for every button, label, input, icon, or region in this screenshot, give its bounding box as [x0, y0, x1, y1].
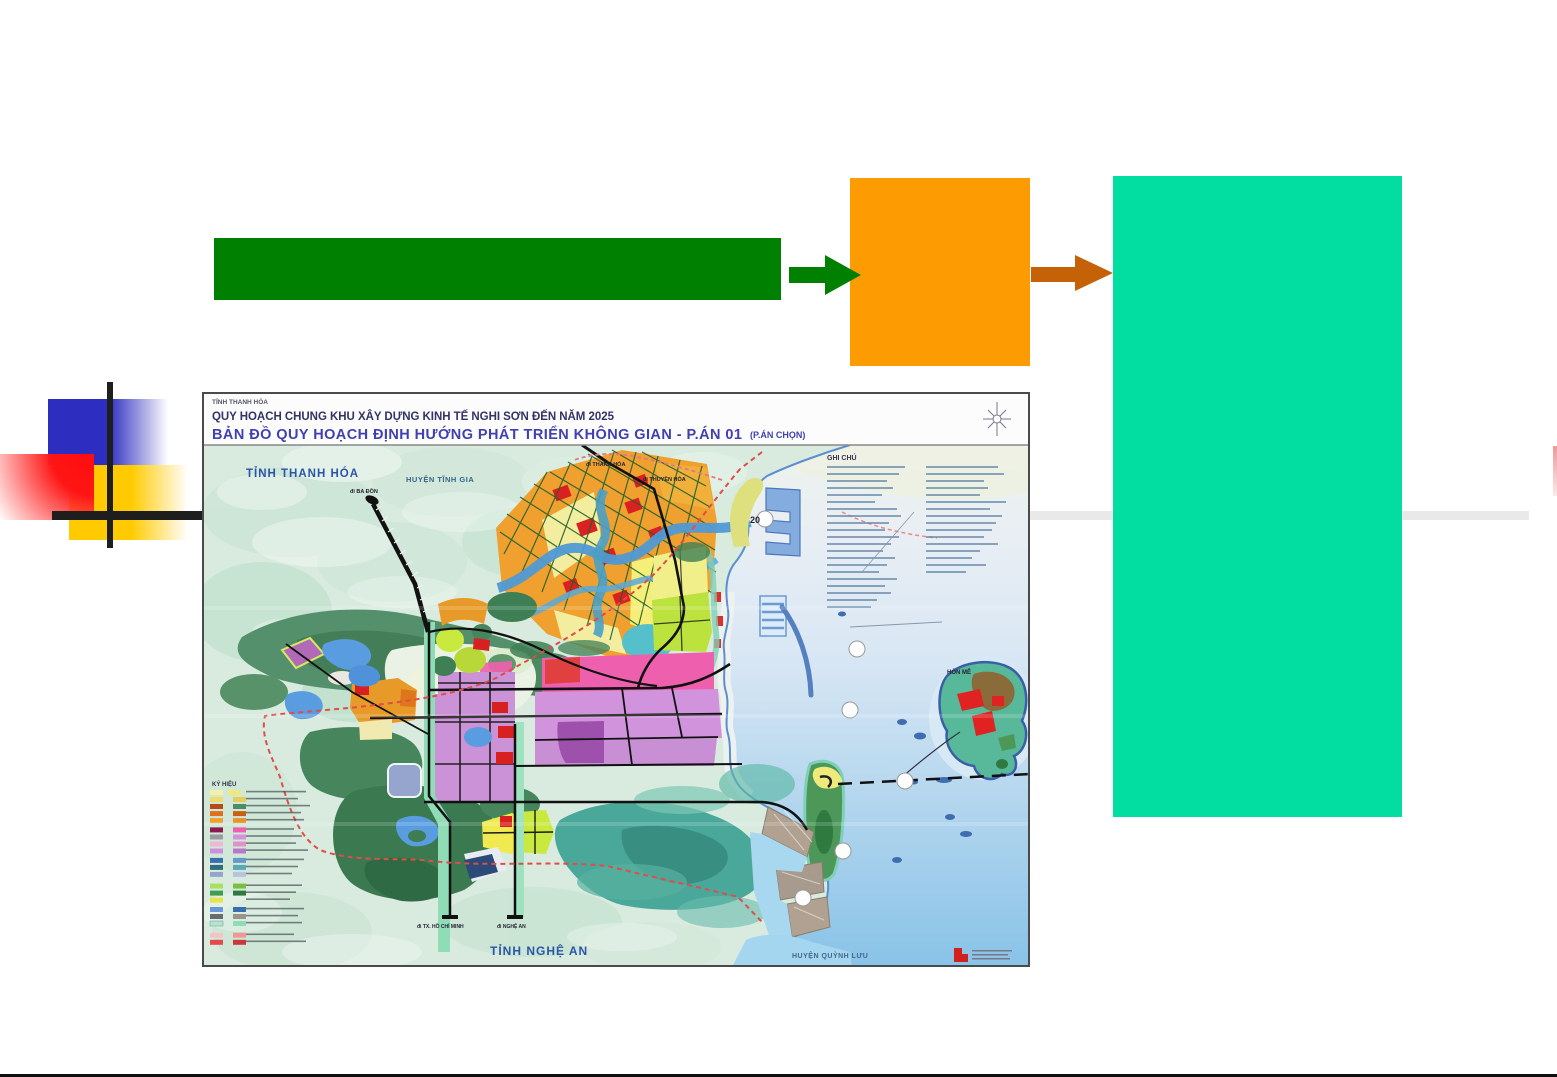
svg-text:BẢN ĐỒ QUY HOẠCH ĐỊNH HƯỚNG PH: BẢN ĐỒ QUY HOẠCH ĐỊNH HƯỚNG PHÁT TRIỂN K… [212, 425, 742, 443]
svg-text:(P.ÁN CHỌN): (P.ÁN CHỌN) [750, 430, 805, 440]
svg-text:QUY HOẠCH CHUNG KHU XÂY DỰNG: QUY HOẠCH CHUNG KHU XÂY DỰNG KINH TẾ NGH… [212, 410, 615, 423]
svg-text:đi THUYỀN HÒA: đi THUYỀN HÒA [643, 475, 686, 483]
svg-text:TỈNH THANH HÓA: TỈNH THANH HÓA [212, 397, 268, 406]
svg-text:đi THANH HÓA: đi THANH HÓA [586, 460, 625, 468]
svg-text:HUYỆN TĨNH GIA: HUYỆN TĨNH GIA [406, 475, 474, 484]
svg-text:đi NGHỆ AN: đi NGHỆ AN [497, 922, 526, 930]
svg-text:KÝ HIỆU: KÝ HIỆU [212, 780, 236, 788]
svg-text:HUYỆN QUỲNH LƯU: HUYỆN QUỲNH LƯU [792, 951, 868, 960]
svg-text:20: 20 [750, 515, 760, 525]
svg-text:HÒN MÊ: HÒN MÊ [947, 668, 971, 676]
svg-text:đi TX. HỒ CHÍ MINH: đi TX. HỒ CHÍ MINH [417, 922, 464, 930]
svg-text:TỈNH NGHỆ AN: TỈNH NGHỆ AN [490, 943, 588, 958]
svg-text:GHI CHÚ: GHI CHÚ [827, 453, 857, 462]
svg-text:đi BA ĐỒN: đi BA ĐỒN [350, 488, 378, 495]
svg-text:TỈNH THANH HÓA: TỈNH THANH HÓA [246, 467, 359, 480]
